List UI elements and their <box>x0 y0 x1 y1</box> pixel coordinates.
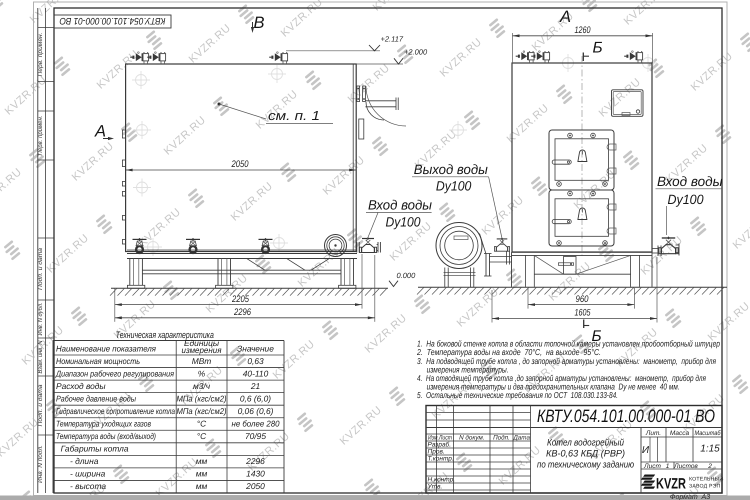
svg-text:Рабочее давление воды: Рабочее давление воды <box>56 393 136 403</box>
svg-text:Котел водогрейный: Котел водогрейный <box>547 437 625 448</box>
svg-text:KVZR.RU: KVZR.RU <box>346 62 393 106</box>
svg-text:21: 21 <box>250 381 260 391</box>
svg-text:Диапазон рабочего регулировани: Диапазон рабочего регулирования <box>55 368 174 378</box>
svg-text:Подп. и дата: Подп. и дата <box>37 247 44 290</box>
svg-text:2050: 2050 <box>245 481 265 491</box>
svg-text:Листов: Листов <box>673 463 698 470</box>
svg-text:960: 960 <box>576 294 590 305</box>
svg-text:KVZR.RU: KVZR.RU <box>45 232 92 276</box>
svg-text:- высота: - высота <box>56 481 106 491</box>
svg-text:А: А <box>559 8 571 26</box>
svg-text:KVZR.RU: KVZR.RU <box>321 154 368 198</box>
svg-text:KVZR.RU: KVZR.RU <box>438 36 485 80</box>
svg-text:Утв.: Утв. <box>427 484 443 491</box>
svg-text:1:15: 1:15 <box>700 444 720 455</box>
svg-text:Значение: Значение <box>237 344 274 354</box>
svg-text:%: % <box>198 368 206 378</box>
svg-text:Дата: Дата <box>512 435 530 442</box>
svg-text:мм: мм <box>196 481 208 491</box>
svg-text:0,63: 0,63 <box>247 356 264 366</box>
svg-text:0,06 (0,6): 0,06 (0,6) <box>238 406 274 416</box>
svg-text:1260: 1260 <box>575 25 592 36</box>
svg-text:по техническому заданию: по техническому заданию <box>537 459 634 470</box>
svg-text:МВт: МВт <box>192 356 212 366</box>
svg-text:Инв. N подл.: Инв. N подл. <box>37 445 44 483</box>
svg-text:2296: 2296 <box>245 456 265 466</box>
svg-text:+2.117: +2.117 <box>381 35 404 44</box>
svg-text:KVZR.RU: KVZR.RU <box>706 300 750 344</box>
svg-text:Разраб.: Разраб. <box>428 442 452 449</box>
svg-text:см. п. 1: см. п. 1 <box>268 108 320 123</box>
svg-text:Выход воды: Выход воды <box>414 162 488 177</box>
svg-text:5. Остальные технические треб: 5. Остальные технические требования по О… <box>417 390 618 400</box>
svg-text:40-110: 40-110 <box>243 368 269 378</box>
svg-text:KVZR.RU: KVZR.RU <box>162 114 209 158</box>
svg-text:Лит.: Лит. <box>645 430 661 437</box>
svg-text:КВТУ.054.101.00.000-01 ВО: КВТУ.054.101.00.000-01 ВО <box>537 406 715 426</box>
svg-text:Температура воды (вход/выход): Температура воды (вход/выход) <box>56 431 156 441</box>
svg-text:И: И <box>642 445 650 456</box>
svg-text:ЗАВОД РЭП: ЗАВОД РЭП <box>689 484 721 490</box>
svg-text:2205: 2205 <box>231 294 249 305</box>
svg-text:70/95: 70/95 <box>245 431 266 441</box>
svg-text:КВТУ.054.101.00.000-01 ВО: КВТУ.054.101.00.000-01 ВО <box>59 15 166 26</box>
svg-text:Вход воды: Вход воды <box>657 174 723 189</box>
svg-text:2: 2 <box>707 463 712 470</box>
svg-text:Температура уходящих газов: Температура уходящих газов <box>56 419 152 429</box>
svg-text:KVZR.RU: KVZR.RU <box>296 246 343 290</box>
svg-text:KVZR.RU: KVZR.RU <box>0 166 24 210</box>
svg-text:МПа (кгс/см2): МПа (кгс/см2) <box>177 393 227 403</box>
svg-text:измерения: измерения <box>182 345 222 355</box>
svg-text:Б: Б <box>593 40 603 57</box>
svg-text:КВ-0,63 КБД (РВР): КВ-0,63 КБД (РВР) <box>546 448 625 459</box>
svg-text:МПа (кгс/см2): МПа (кгс/см2) <box>177 406 227 416</box>
svg-text:м3/ч: м3/ч <box>193 381 211 391</box>
svg-text:Гидравлическое сопротивление к: Гидравлическое сопротивление котла <box>56 406 175 416</box>
svg-text:Масштаб: Масштаб <box>695 430 721 437</box>
svg-text:KVZR.RU: KVZR.RU <box>95 48 142 92</box>
svg-text:В: В <box>254 14 265 32</box>
svg-text:Расход воды: Расход воды <box>56 381 106 391</box>
svg-text:KVZR.RU: KVZR.RU <box>279 0 326 40</box>
svg-text:Перв. примен.: Перв. примен. <box>37 116 44 156</box>
svg-text:1605: 1605 <box>575 308 592 319</box>
svg-text:Габариты котла: Габариты котла <box>56 444 129 454</box>
svg-text:А: А <box>94 123 106 141</box>
svg-text:Н.контр.: Н.контр. <box>428 477 456 484</box>
svg-text:KVZR.RU: KVZR.RU <box>137 206 184 250</box>
svg-text:Подп.: Подп. <box>493 435 510 442</box>
svg-text:- длина: - длина <box>56 456 99 466</box>
svg-text:KVZR.RU: KVZR.RU <box>0 416 41 460</box>
svg-text:KVZR.RU: KVZR.RU <box>689 50 736 94</box>
svg-text:Dy100: Dy100 <box>436 178 472 193</box>
svg-text:+2.000: +2.000 <box>404 48 428 57</box>
svg-text:Масса: Масса <box>670 430 690 437</box>
svg-text:KVZR.RU: KVZR.RU <box>187 22 234 66</box>
svg-text:1: 1 <box>666 463 670 470</box>
svg-text:Dy100: Dy100 <box>668 192 704 207</box>
svg-text:KVZR.RU: KVZR.RU <box>480 194 527 238</box>
svg-text:2296: 2296 <box>233 307 251 318</box>
svg-text:KVZR.RU: KVZR.RU <box>338 404 385 448</box>
svg-text:Вход воды: Вход воды <box>368 198 432 213</box>
svg-text:мм: мм <box>196 456 208 466</box>
svg-text:KVZR.RU: KVZR.RU <box>597 76 644 120</box>
svg-text:2050: 2050 <box>231 159 249 170</box>
svg-text:КОТЕЛЬНЫЙ: КОТЕЛЬНЫЙ <box>689 476 723 483</box>
svg-text:Наименование показателя: Наименование показателя <box>56 344 156 354</box>
svg-text:- ширина: - ширина <box>56 469 106 479</box>
svg-text:0,6 (6,0): 0,6 (6,0) <box>240 393 271 403</box>
svg-text:не более 280: не более 280 <box>232 419 280 429</box>
svg-text:KVZR.RU: KVZR.RU <box>70 140 117 184</box>
svg-text:Dy100: Dy100 <box>386 215 421 230</box>
svg-text:Инв. N дубл.: Инв. N дубл. <box>37 303 44 336</box>
svg-text:Подп. и дата: Подп. и дата <box>37 384 44 427</box>
svg-text:KVZR.RU: KVZR.RU <box>229 180 276 224</box>
svg-text:Номинальная мощность: Номинальная мощность <box>56 356 140 366</box>
svg-text:KVZR.RU: KVZR.RU <box>622 0 669 28</box>
svg-text:°С: °С <box>197 419 207 429</box>
svg-text:Взам. инв. N: Взам. инв. N <box>37 340 44 373</box>
svg-text:0.000: 0.000 <box>397 271 417 280</box>
svg-text:KVZR.RU: KVZR.RU <box>731 208 750 252</box>
svg-text:Перв. примен.: Перв. примен. <box>37 33 44 77</box>
svg-text:KVZR: KVZR <box>656 476 686 493</box>
svg-text:1430: 1430 <box>246 469 265 479</box>
svg-text:Т.контр.: Т.контр. <box>428 456 454 463</box>
svg-text:KVZR.RU: KVZR.RU <box>271 338 318 382</box>
svg-text:Лист: Лист <box>643 463 661 470</box>
svg-text:°С: °С <box>197 431 207 441</box>
svg-text:Пров.: Пров. <box>428 449 445 456</box>
svg-text:мм: мм <box>196 469 208 479</box>
svg-text:Формат А3: Формат А3 <box>670 494 710 500</box>
svg-text:N докум.: N докум. <box>459 435 484 442</box>
